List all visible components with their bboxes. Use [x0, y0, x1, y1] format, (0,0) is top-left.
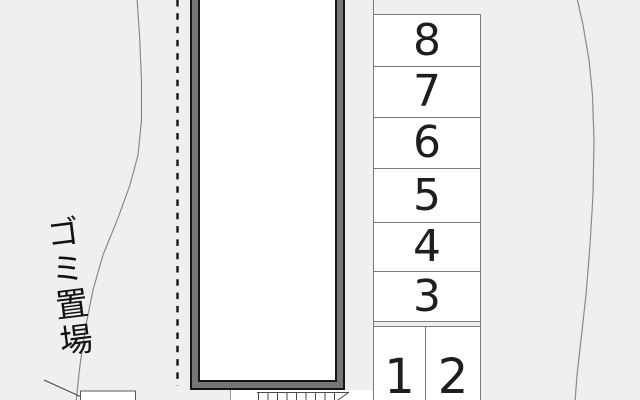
- road-boundary-line-right: [575, 0, 594, 400]
- space-number: 4: [413, 225, 441, 269]
- parking-space-8: 8: [373, 14, 481, 67]
- space-number: 7: [413, 70, 441, 114]
- parking-space-1: 1: [373, 326, 426, 400]
- parking-site-map: 8 7 6 5 4 3 1 2 ゴミ置場: [0, 0, 640, 400]
- parking-space-5: 5: [373, 168, 481, 223]
- garbage-area-box: [81, 391, 136, 400]
- space-number: 3: [413, 275, 441, 319]
- parking-space-6: 6: [373, 117, 481, 169]
- parking-space-4: 4: [373, 222, 481, 272]
- building-interior: [198, 0, 337, 382]
- space-number: 2: [438, 349, 469, 400]
- space-number: 5: [413, 174, 441, 218]
- space-number: 8: [413, 19, 441, 63]
- parking-space-7: 7: [373, 66, 481, 118]
- parking-space-3: 3: [373, 271, 481, 322]
- parking-space-2: 2: [425, 326, 481, 400]
- space-number: 1: [384, 349, 415, 400]
- space-number: 6: [413, 121, 441, 165]
- building-outline: [190, 0, 345, 390]
- walkway-strip: [231, 390, 374, 400]
